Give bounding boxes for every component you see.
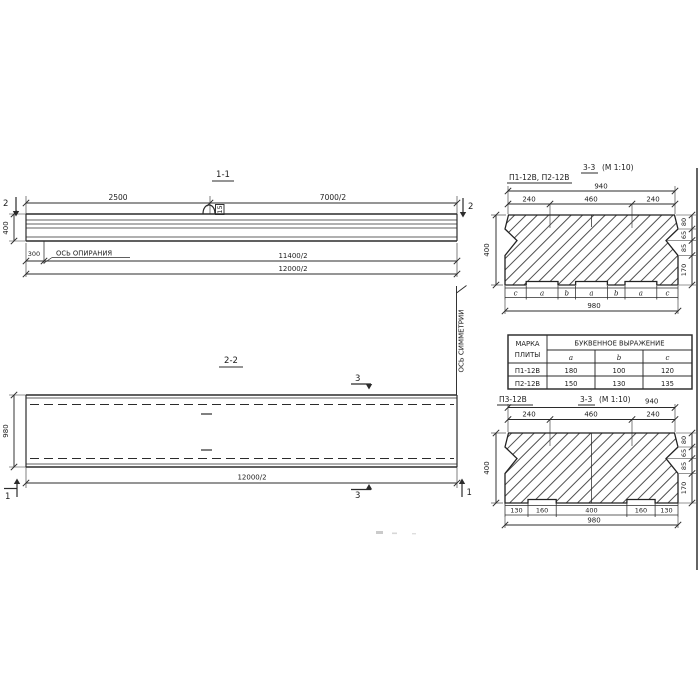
dim-240: 240 [522, 411, 535, 419]
row-c: 135 [661, 380, 674, 388]
row-a: 150 [565, 380, 578, 388]
dim-85: 85 [680, 462, 688, 470]
cut-marker-3-top: 3 [351, 374, 372, 390]
dim-height-400: 400 [2, 211, 26, 244]
cut-3-label: 3 [355, 491, 360, 501]
dim-65: 65 [680, 449, 688, 457]
dim-12000-2: 12000/2 [278, 265, 307, 273]
dim-170: 170 [680, 482, 688, 494]
row-b: 100 [613, 367, 626, 375]
dim-160: 160 [536, 507, 548, 515]
letter-a: a [639, 290, 643, 298]
dim-7000-2: 7000/2 [320, 193, 347, 202]
row-a: 180 [565, 367, 578, 375]
dim-460: 460 [584, 196, 597, 204]
marks-label: П1-12В, П2-12В [509, 173, 569, 182]
dim-240: 240 [646, 196, 659, 204]
cut-1-label: 1 [5, 492, 10, 502]
dim-300: 300 [28, 250, 40, 258]
bottom-dims-band: 130 160 400 160 130 [505, 504, 678, 518]
dim-940: 940 [645, 398, 658, 406]
cut-marker-2-right: 2 [460, 198, 474, 218]
letter-a: a [540, 290, 544, 298]
letter-b: b [565, 290, 570, 298]
table-row: П2-12В 150 130 135 [515, 380, 674, 388]
cross-section-top: П1-12В, П2-12В 3-3 (М 1:10) 940 240 460 … [483, 163, 696, 314]
dim-980: 980 [587, 302, 600, 310]
cross-section-bottom: П3-12В 3-3 (М 1:10) 940 240 460 240 [483, 395, 696, 528]
mark-label: П3-12В [499, 395, 527, 404]
letter-c: c [665, 290, 669, 298]
beam-outline [26, 214, 457, 241]
table-header-group: БУКВЕННОЕ ВЫРАЖЕНИЕ [574, 340, 664, 348]
dim-400: 400 [585, 507, 597, 515]
row-b: 130 [613, 380, 626, 388]
support-axis-label: ОСЬ ОПИРАНИЯ [56, 250, 112, 258]
dim-11400: 11400/2 [23, 243, 460, 277]
dim-65: 65 [680, 231, 688, 239]
blueprint-page: 1-1 15 2500 7000/2 [0, 0, 700, 700]
section-2-2: 2-2 3 980 [2, 356, 472, 502]
section-1-1-title: 1-1 [216, 170, 230, 180]
lifting-loop-icon: 15 [203, 205, 224, 215]
cut-marker-1-left: 1 [4, 479, 20, 503]
dim-400-left: 400 [483, 430, 506, 506]
table-col-c: c [666, 354, 670, 362]
dim-85: 85 [680, 244, 688, 252]
cut-marker-3-bottom: 3 [351, 484, 372, 501]
dim-940: 940 [594, 183, 607, 191]
section-2-2-title: 2-2 [224, 356, 238, 366]
loop-tag: 15 [216, 205, 224, 213]
dim-980: 980 [2, 424, 10, 437]
cut-marker-2-left: 2 [3, 197, 19, 217]
dim-130: 130 [510, 507, 522, 515]
letter-dims-band: c a b a b a c [505, 286, 678, 300]
table-header-mark-line1: МАРКА [515, 340, 539, 348]
dim-2500: 2500 [108, 193, 127, 202]
dim-80: 80 [680, 436, 688, 444]
section-3-3-title: 3-3 [583, 163, 595, 172]
dim-400: 400 [2, 221, 10, 234]
dim-12000-2: 12000/2 [237, 474, 266, 482]
faint-artifact [376, 531, 416, 534]
table-col-a: a [569, 354, 573, 362]
dim-160: 160 [635, 507, 647, 515]
dim-980-bottom: 980 [502, 517, 681, 529]
cut-marker-1-right: 1 [459, 479, 472, 499]
dim-980-bottom: 980 [502, 300, 681, 315]
cut-3-label: 3 [355, 374, 360, 384]
letter-b: b [614, 290, 619, 298]
scale-label: (М 1:10) [599, 395, 631, 404]
dim-240: 240 [522, 196, 535, 204]
letter-a: a [589, 290, 593, 298]
row-c: 120 [661, 367, 674, 375]
dim-130: 130 [660, 507, 672, 515]
scale-label: (М 1:10) [602, 163, 634, 172]
letter-c: c [514, 290, 518, 298]
dim-240: 240 [646, 411, 659, 419]
drawing-canvas: 1-1 15 2500 7000/2 [0, 0, 700, 700]
dim-980: 980 [587, 517, 600, 525]
table-row: П1-12В 180 100 120 [515, 367, 674, 375]
cut-1-label: 1 [467, 488, 472, 498]
dimension-table: МАРКА ПЛИТЫ БУКВЕННОЕ ВЫРАЖЕНИЕ a b c П1… [508, 335, 692, 389]
row-mark: П2-12В [515, 380, 541, 388]
cut-2-label: 2 [468, 202, 473, 212]
section-1-1: 1-1 15 2500 7000/2 [2, 170, 473, 277]
dim-bottom-12000: 12000/2 [23, 467, 460, 488]
dim-12000: 12000/2 [23, 265, 460, 277]
table-col-b: b [617, 354, 622, 362]
dim-170: 170 [680, 264, 688, 276]
dim-460: 460 [584, 411, 597, 419]
dim-11400-2: 11400/2 [278, 252, 307, 260]
dim-top: 2500 7000/2 [23, 193, 460, 214]
dim-400: 400 [483, 461, 491, 474]
dim-400-left: 400 [483, 212, 506, 288]
row-mark: П1-12В [515, 367, 541, 375]
slab-plan-outline [26, 395, 457, 467]
dim-width-980: 980 [2, 392, 26, 470]
dim-80: 80 [680, 218, 688, 226]
table-header-mark-line2: ПЛИТЫ [515, 351, 540, 359]
symmetry-axis: ОСЬ СИММЕТРИИ [457, 286, 467, 396]
section-3-3-title: 3-3 [580, 395, 592, 404]
dim-400: 400 [483, 243, 491, 256]
cut-2-label: 2 [3, 199, 8, 209]
symmetry-axis-label: ОСЬ СИММЕТРИИ [458, 309, 466, 372]
